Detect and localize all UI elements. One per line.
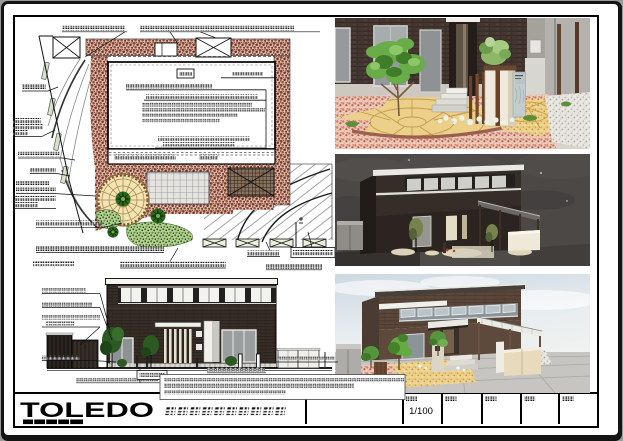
svg-text:TOLEDO: TOLEDO: [20, 399, 154, 422]
svg-text:1/100: 1/100: [409, 406, 433, 417]
